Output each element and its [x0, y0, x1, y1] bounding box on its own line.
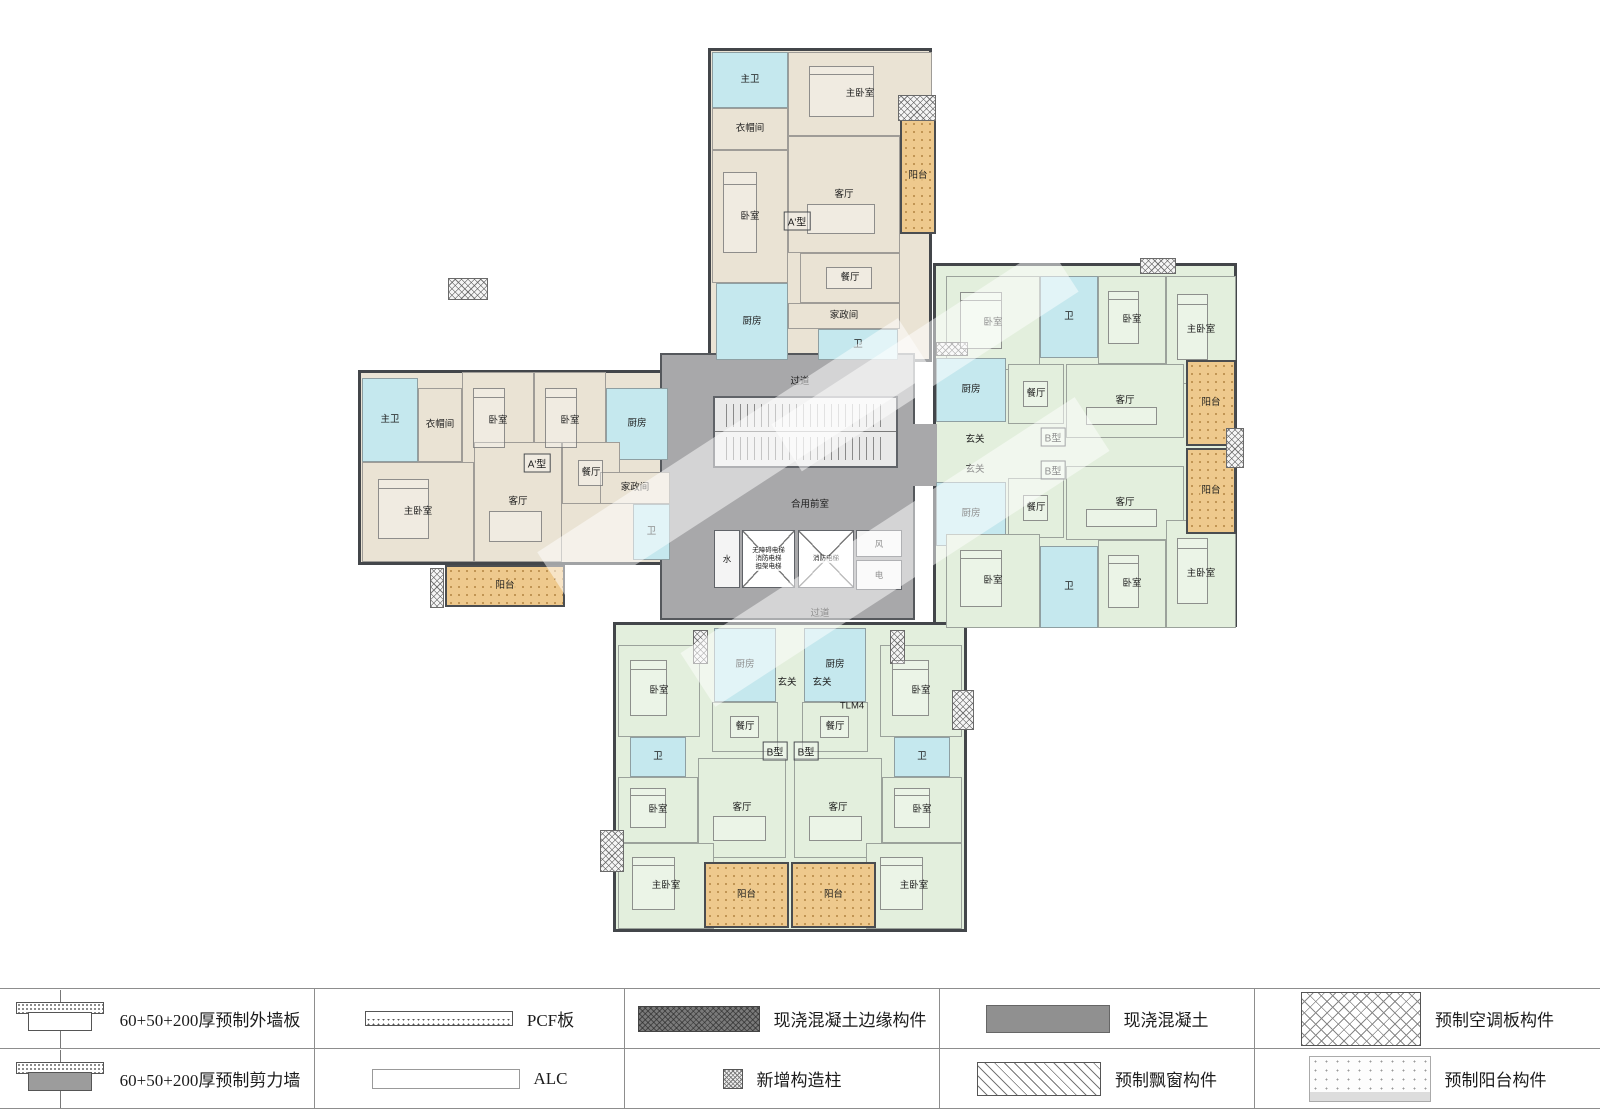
room-label: 餐厅	[840, 273, 859, 283]
room-label: 厨房	[825, 660, 844, 670]
elevator-label: 消防电梯	[812, 555, 840, 563]
room: 客厅	[1066, 364, 1184, 438]
water-shaft: 水	[714, 530, 740, 588]
room-label: 餐厅	[735, 722, 754, 732]
room: 衣帽间	[418, 388, 462, 462]
room-label: 餐厅	[1026, 389, 1045, 399]
legend-label: 预制空调板构件	[1435, 1006, 1554, 1031]
legend-label: 预制飘窗构件	[1115, 1066, 1217, 1091]
balcony-label: 阳台	[1200, 486, 1221, 496]
plan-label: 玄关	[812, 674, 831, 688]
floor-plan-drawing: { "colors":{ "unit_a_fill":"#eae3d4","un…	[0, 0, 1600, 1110]
plan-label: 玄关	[965, 461, 984, 475]
room-label: 主卧室	[652, 881, 681, 891]
legend-row-2: 60+50+200厚预制剪力墙 ALC 新增构造柱 预制飘窗构件 预制阳台构件	[0, 1048, 1600, 1108]
ac-panel	[898, 95, 936, 121]
room: 厨房	[714, 628, 776, 702]
room-label: 卧室	[911, 686, 930, 696]
legend-row-1: 60+50+200厚预制外墙板 PCF板 现浇混凝土边缘构件 现浇混凝土 预制空…	[0, 989, 1600, 1048]
room-label: 主卧室	[404, 507, 433, 517]
room: 卧室	[1098, 540, 1166, 628]
room-label: 卧室	[648, 805, 667, 815]
balcony-label: 阳台	[494, 581, 515, 591]
room-label: 主卧室	[1187, 569, 1216, 579]
legend-label: 预制阳台构件	[1445, 1066, 1547, 1091]
room-label: 卧室	[983, 318, 1002, 328]
legend-item-alc: ALC	[315, 1049, 625, 1108]
room-label: 厨房	[961, 509, 980, 519]
sofa-symbol	[1086, 509, 1158, 528]
room-label: 餐厅	[581, 468, 600, 478]
sofa-symbol	[489, 511, 542, 542]
ac-panel	[600, 830, 624, 872]
ac-panel	[1226, 428, 1244, 468]
legend-label: 60+50+200厚预制外墙板	[120, 1006, 301, 1031]
room: 卧室	[618, 645, 700, 737]
room: 衣帽间	[712, 108, 788, 150]
room: 厨房	[936, 358, 1006, 422]
floor-plan: 水风电无障碍电梯消防电梯担架电梯消防电梯主卫衣帽间卧室主卧室客厅餐厅家政间卫厨房…	[0, 0, 1600, 960]
room: 主卧室	[618, 843, 714, 929]
room-label: 主卧室	[1187, 325, 1216, 335]
alc-swatch	[372, 1069, 520, 1089]
room: 家政间	[788, 303, 900, 329]
room-label: 主卫	[740, 75, 759, 85]
legend-label: 新增构造柱	[757, 1066, 842, 1091]
balcony-label: 阳台	[736, 890, 757, 900]
room: 厨房	[716, 283, 788, 360]
room: 客厅	[788, 136, 900, 253]
room: 卧室	[712, 150, 788, 283]
room: 餐厅	[1008, 478, 1064, 538]
room-label: 卧室	[740, 212, 759, 222]
plan-label: 合用前室	[791, 496, 829, 510]
room: 主卧室	[1166, 520, 1236, 628]
panel-strip	[28, 1072, 92, 1091]
room-label: 卧室	[1122, 315, 1141, 325]
room: 卫	[630, 737, 686, 777]
legend-item-ext-wall-panel: 60+50+200厚预制外墙板	[0, 989, 315, 1048]
air-shaft: 风	[856, 530, 902, 557]
room: 主卫	[712, 52, 788, 108]
unit-type-label: A'型	[524, 454, 551, 473]
ac-panel	[1140, 258, 1176, 274]
elevator: 消防电梯	[798, 530, 854, 588]
balcony: 阳台	[791, 862, 876, 928]
balcony: 阳台	[445, 565, 565, 607]
cast-edge-swatch	[638, 1006, 760, 1032]
room-label: 卫	[1064, 312, 1074, 322]
shear-wall-swatch	[14, 1056, 106, 1102]
sofa-symbol	[713, 816, 766, 841]
legend-item-pcf: PCF板	[315, 989, 625, 1048]
bay-window-swatch	[977, 1062, 1101, 1096]
room-label: 卫	[653, 752, 663, 762]
unit-type-label: A'型	[784, 212, 811, 231]
room-label: 卧室	[649, 686, 668, 696]
room: 餐厅	[1008, 364, 1064, 424]
room: 卫	[894, 737, 950, 777]
room-label: 卧室	[912, 805, 931, 815]
room-label: 卧室	[560, 416, 579, 426]
room-label: 卧室	[488, 416, 507, 426]
elevator-label: 无障碍电梯消防电梯担架电梯	[751, 547, 786, 571]
balcony-swatch	[1309, 1056, 1431, 1102]
balcony-label: 阳台	[823, 890, 844, 900]
room-label: 卫	[917, 752, 927, 762]
plan-label: 玄关	[965, 431, 984, 445]
room-label: 衣帽间	[736, 124, 765, 134]
room: 卧室	[882, 777, 962, 843]
room-label: 卫	[853, 340, 863, 350]
room-label: 卫	[647, 527, 657, 537]
cast-concrete-swatch	[986, 1005, 1110, 1033]
new-column-swatch	[723, 1069, 743, 1089]
room-label: 卧室	[983, 576, 1002, 586]
panel-strip	[28, 1012, 92, 1031]
room-label: 餐厅	[1026, 503, 1045, 513]
room-label: 客厅	[1115, 396, 1134, 406]
room: 卧室	[618, 777, 698, 843]
core-connector	[913, 424, 937, 486]
sofa-symbol	[809, 816, 862, 841]
unit-type-label: B型	[1041, 428, 1066, 447]
room-label: 家政间	[830, 311, 859, 321]
balcony-label: 阳台	[907, 171, 928, 181]
room-label: 客厅	[1115, 498, 1134, 508]
ac-panel	[952, 690, 974, 730]
room-label: 厨房	[961, 385, 980, 395]
room-label: 客厅	[732, 803, 751, 813]
plan-label: 过道	[790, 373, 809, 387]
ac-panel	[890, 630, 905, 664]
room: 主卫	[362, 378, 418, 462]
plan-label: TLM4	[840, 701, 864, 712]
stairwell	[713, 396, 898, 468]
room: 卫	[1040, 276, 1098, 358]
room: 厨房	[804, 628, 866, 702]
room: 主卧室	[866, 843, 962, 929]
ac-panel	[430, 568, 444, 608]
room-label: 厨房	[735, 660, 754, 670]
legend-item-bay-window: 预制飘窗构件	[940, 1049, 1255, 1108]
room: 餐厅	[800, 253, 900, 303]
legend-label: PCF板	[527, 1006, 574, 1031]
plan-label: 玄关	[777, 674, 796, 688]
unit-type-label: B型	[1041, 461, 1066, 480]
room: 卫	[818, 329, 898, 360]
room-label: 家政间	[621, 483, 650, 493]
balcony-label: 阳台	[1200, 398, 1221, 408]
sofa-symbol	[807, 204, 875, 234]
room: 主卧室	[362, 462, 474, 562]
ac-panel	[448, 278, 488, 300]
room: 家政间	[600, 472, 670, 504]
legend-label: 现浇混凝土	[1124, 1006, 1209, 1031]
legend-item-cast-concrete: 现浇混凝土	[940, 989, 1255, 1048]
legend-label: 现浇混凝土边缘构件	[774, 1006, 927, 1031]
room: 卫	[633, 504, 670, 560]
sofa-symbol	[1086, 407, 1158, 426]
pcf-swatch	[365, 1011, 513, 1026]
room-label: 衣帽间	[426, 420, 455, 430]
room: 卧室	[1098, 276, 1166, 364]
unit-type-label: B型	[763, 742, 788, 761]
legend-item-balcony: 预制阳台构件	[1255, 1049, 1600, 1108]
room: 卧室	[946, 534, 1040, 628]
room-label: 主卧室	[900, 881, 929, 891]
legend-label: ALC	[534, 1069, 568, 1089]
ac-panel-swatch	[1301, 992, 1421, 1046]
ac-panel	[693, 630, 708, 664]
room-label: 卧室	[1122, 579, 1141, 589]
plan-label: 过道	[810, 605, 829, 619]
elevator: 无障碍电梯消防电梯担架电梯	[742, 530, 795, 588]
unit-type-label: B型	[794, 742, 819, 761]
room-label: 卫	[1064, 582, 1074, 592]
power-shaft: 电	[856, 560, 902, 590]
legend: 60+50+200厚预制外墙板 PCF板 现浇混凝土边缘构件 现浇混凝土 预制空…	[0, 988, 1600, 1109]
room: 卫	[1040, 546, 1098, 628]
room-label: 餐厅	[825, 722, 844, 732]
ext-wall-panel-swatch	[14, 996, 106, 1042]
room-label: 厨房	[627, 419, 646, 429]
legend-item-new-column: 新增构造柱	[625, 1049, 940, 1108]
room-label: 客厅	[508, 497, 527, 507]
room-label: 客厅	[828, 803, 847, 813]
legend-item-ac-panel: 预制空调板构件	[1255, 989, 1600, 1048]
balcony: 阳台	[900, 118, 936, 234]
legend-item-cast-edge: 现浇混凝土边缘构件	[625, 989, 940, 1048]
room-label: 主卧室	[846, 89, 875, 99]
legend-item-shear-wall: 60+50+200厚预制剪力墙	[0, 1049, 315, 1108]
balcony: 阳台	[704, 862, 789, 928]
room-label: 主卫	[380, 415, 399, 425]
room-label: 厨房	[742, 317, 761, 327]
room-label: 客厅	[834, 190, 853, 200]
legend-label: 60+50+200厚预制剪力墙	[120, 1066, 301, 1091]
